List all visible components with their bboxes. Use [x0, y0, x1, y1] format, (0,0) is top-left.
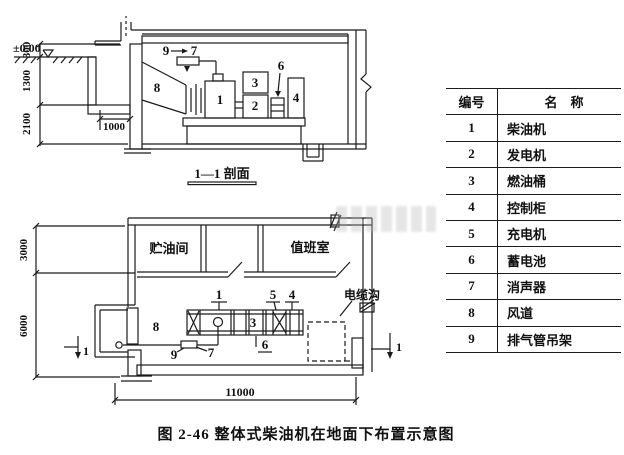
section-structure: [95, 7, 371, 161]
part-label-4: 4: [293, 90, 300, 105]
foundation-plinth: [183, 118, 305, 126]
part-label-3: 3: [252, 75, 259, 90]
section-title-label: 1—1 剖面: [194, 166, 249, 181]
plan-view: 贮油间 值班室 电缆沟 1 5 4 3 6 8 9 7: [18, 212, 402, 405]
table-row: 3燃油桶: [446, 168, 621, 194]
section-title: 1—1 剖面: [188, 166, 256, 185]
table-row: 9排气管吊架: [446, 326, 621, 352]
legend-no: 9: [446, 326, 498, 352]
wall-pilaster: [352, 338, 363, 368]
table-row: 4控制柜: [446, 194, 621, 220]
battery-box: [271, 98, 284, 118]
cable-trench-label: 电缆沟: [344, 287, 380, 302]
legend-no: 7: [446, 273, 498, 299]
intake-pit: 1000: [88, 57, 133, 133]
plan-part-label-8: 8: [153, 319, 160, 334]
table-row: 2发电机: [446, 141, 621, 167]
door-swing: [228, 262, 242, 277]
legend-name: 风道: [498, 300, 622, 326]
part-label-1: 1: [217, 92, 224, 107]
legend-header-name: 名 称: [498, 89, 622, 115]
cable-pit-section: [303, 144, 323, 161]
legend-name: 燃油桶: [498, 168, 622, 194]
section-part-labels: 9 7 8 1 3 2 6 4: [154, 43, 300, 113]
part-label-7: 7: [191, 43, 198, 58]
machine-train-plan: [116, 310, 353, 361]
legend-table: 编号 名 称 1柴油机 2发电机 3燃油桶 4控制柜 5充电机 6蓄电池 7消声…: [446, 88, 621, 353]
watermark: [336, 206, 436, 232]
dim-300-label: 300: [21, 41, 33, 58]
figure-page: ±0.00 300 1300 2100 1000: [0, 0, 624, 455]
air-duct-section: [142, 62, 201, 115]
legend-name: 排气管吊架: [498, 326, 622, 352]
foundation-block: [187, 126, 301, 144]
plan-part-label-7: 7: [208, 345, 215, 360]
dim-1300-label: 1300: [21, 70, 33, 93]
dim-11000-label: 11000: [225, 385, 254, 399]
part-label-2: 2: [252, 98, 259, 113]
legend-no: 3: [446, 168, 498, 194]
table-row: 6蓄电池: [446, 247, 621, 273]
plan-walls: [95, 212, 375, 381]
plan-part-label-5: 5: [270, 287, 277, 302]
legend-name: 消声器: [498, 273, 622, 299]
table-header-row: 编号 名 称: [446, 89, 621, 115]
legend-no: 2: [446, 141, 498, 167]
legend-no: 5: [446, 220, 498, 246]
bottom-wall: [137, 365, 363, 375]
legend-no: 6: [446, 247, 498, 273]
dim-3000-label: 3000: [18, 239, 30, 262]
legend-name: 控制柜: [498, 194, 622, 220]
legend-name: 蓄电池: [498, 247, 622, 273]
wall-break-symbol: [361, 74, 371, 92]
dim-1000-label: 1000: [103, 121, 126, 133]
ceiling-slab: [142, 36, 348, 43]
legend-name: 发电机: [498, 141, 622, 167]
cable-trench-dashed: [308, 322, 353, 361]
plan-part-label-6: 6: [262, 337, 269, 352]
part-label-6: 6: [278, 58, 285, 73]
intake-shaft-plan: [95, 305, 138, 357]
plan-part-label-1: 1: [216, 287, 223, 302]
dim-2100-label: 2100: [21, 113, 33, 136]
level-symbol: [43, 50, 53, 57]
door-swing: [336, 262, 350, 277]
exhaust-vent-arrow: [121, 7, 131, 36]
cut-marker-right-label: 1: [396, 340, 402, 354]
figure-caption: 图 2-46 整体式柴油机在地面下布置示意图: [6, 423, 606, 444]
table-row: 8风道: [446, 300, 621, 326]
table-row: 1柴油机: [446, 115, 621, 141]
legend-no: 4: [446, 194, 498, 220]
muffler-section: [177, 57, 216, 74]
legend-no: 8: [446, 300, 498, 326]
table-row: 7消声器: [446, 273, 621, 299]
part-label-9: 9: [163, 43, 170, 58]
legend-header-no: 编号: [446, 89, 498, 115]
dim-6000-label: 6000: [18, 315, 30, 338]
muffler-plan: [181, 341, 197, 348]
plan-part-label-3: 3: [250, 315, 257, 330]
room-duty-label: 值班室: [290, 240, 329, 255]
legend-no: 1: [446, 115, 498, 141]
legend-name: 柴油机: [498, 115, 622, 141]
cut-marker-left-label: 1: [83, 344, 89, 358]
plan-section-cut-markers: 1 1: [64, 333, 402, 359]
part-label-8: 8: [154, 80, 161, 95]
section-view: ±0.00 300 1300 2100 1000: [13, 7, 371, 185]
legend-name: 充电机: [498, 220, 622, 246]
plan-part-label-4: 4: [289, 287, 296, 302]
plan-part-label-9: 9: [171, 347, 178, 362]
table-row: 5充电机: [446, 220, 621, 246]
room-oil-storage-label: 贮油间: [148, 241, 188, 256]
